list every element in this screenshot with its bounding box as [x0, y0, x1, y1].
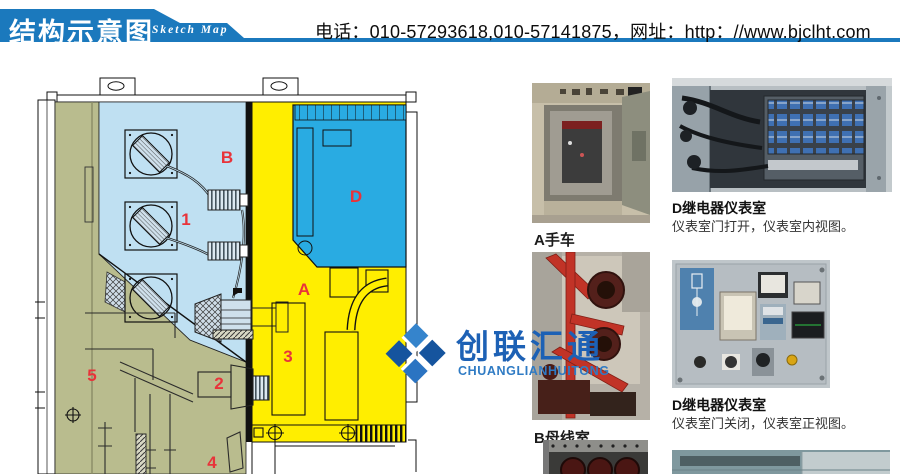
photo-d-open-image — [672, 78, 892, 192]
compartment-label-a: A — [298, 280, 310, 299]
watermark-company-name: 创联汇通 — [456, 320, 604, 368]
compartment-label-4: 4 — [207, 453, 217, 472]
photo-d-closed-title: D继电器仪表室 — [672, 395, 766, 415]
compartment-label-d: D — [350, 187, 362, 206]
watermark-company-name-en: CHUANGLIANHUITONG — [458, 364, 610, 378]
switchgear-structure-diagram: B 1 D A 3 2 5 4 — [35, 72, 450, 474]
page-title: 结构示意图 — [9, 11, 154, 50]
compartment-label-2: 2 — [214, 374, 223, 393]
photo-bottom-left-partial — [543, 440, 648, 474]
compartment-label-3: 3 — [283, 347, 292, 366]
catalog-page: 结构示意图 Sketch Map 电话：010-57293618,010-571… — [0, 0, 900, 474]
photo-d-open-title: D继电器仪表室 — [672, 198, 766, 218]
compartment-label-1: 1 — [181, 210, 190, 229]
photo-d-closed-image — [672, 260, 830, 388]
photo-a-handcart-image — [532, 83, 650, 223]
photo-bottom-right-partial — [672, 450, 890, 474]
photo-a-caption: A手车 — [534, 229, 575, 250]
compartment-label-b: B — [221, 148, 233, 167]
photo-d-open-desc: 仪表室门打开，仪表室内视图。 — [672, 216, 854, 235]
photo-d-closed-desc: 仪表室门关闭，仪表室正视图。 — [672, 413, 854, 432]
watermark-logo-icon — [378, 314, 454, 392]
header-contact-info: 电话：010-57293618,010-57141875，网址：http：//w… — [315, 18, 871, 44]
page-title-en: Sketch Map — [152, 24, 229, 36]
compartment-partition — [246, 102, 252, 442]
compartment-label-5: 5 — [87, 366, 96, 385]
